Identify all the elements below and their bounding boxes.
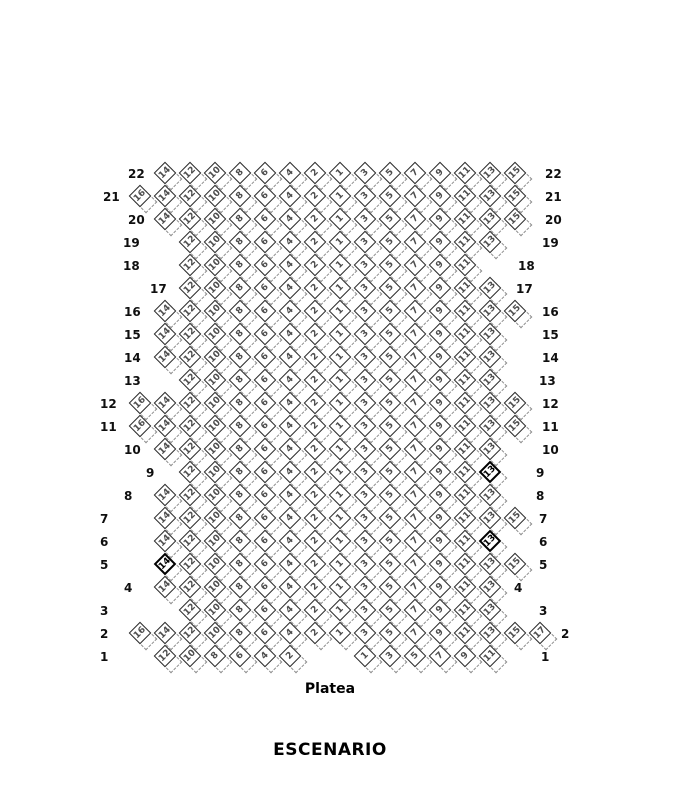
- row-label-right-10: 10: [542, 442, 559, 458]
- row-label-left-18: 18: [123, 258, 140, 274]
- row-label-left-14: 14: [124, 350, 141, 366]
- row-label-left-19: 19: [123, 235, 140, 251]
- row-label-left-2: 2: [100, 626, 108, 642]
- seating-map: Platea ESCENARIO 22221412108642135791113…: [0, 0, 700, 800]
- row-label-left-20: 20: [128, 212, 145, 228]
- row-label-left-22: 22: [128, 166, 145, 182]
- row-label-right-12: 12: [542, 396, 559, 412]
- row-label-left-11: 11: [100, 419, 117, 435]
- row-label-right-14: 14: [542, 350, 559, 366]
- row-label-left-6: 6: [100, 534, 108, 550]
- section-title-platea: Platea: [0, 681, 660, 697]
- row-label-right-18: 18: [518, 258, 535, 274]
- row-label-right-3: 3: [539, 603, 547, 619]
- row-label-right-22: 22: [545, 166, 562, 182]
- row-label-left-4: 4: [124, 580, 132, 596]
- row-label-left-8: 8: [124, 488, 132, 504]
- row-label-right-19: 19: [542, 235, 559, 251]
- row-label-right-11: 11: [542, 419, 559, 435]
- row-label-right-17: 17: [516, 281, 533, 297]
- row-label-left-21: 21: [103, 189, 120, 205]
- row-label-left-9: 9: [146, 465, 154, 481]
- row-label-right-20: 20: [545, 212, 562, 228]
- row-label-right-4: 4: [514, 580, 522, 596]
- row-label-right-6: 6: [539, 534, 547, 550]
- row-label-right-21: 21: [545, 189, 562, 205]
- row-label-right-16: 16: [542, 304, 559, 320]
- row-label-left-16: 16: [124, 304, 141, 320]
- row-label-left-12: 12: [100, 396, 117, 412]
- stage-title-escenario: ESCENARIO: [0, 740, 660, 760]
- row-label-left-13: 13: [124, 373, 141, 389]
- row-label-right-9: 9: [536, 465, 544, 481]
- row-label-left-15: 15: [124, 327, 141, 343]
- row-label-right-7: 7: [539, 511, 547, 527]
- row-label-left-10: 10: [124, 442, 141, 458]
- row-label-left-3: 3: [100, 603, 108, 619]
- row-label-left-1: 1: [100, 649, 108, 665]
- row-label-left-5: 5: [100, 557, 108, 573]
- row-label-right-13: 13: [539, 373, 556, 389]
- row-label-right-5: 5: [539, 557, 547, 573]
- row-label-left-7: 7: [100, 511, 108, 527]
- row-label-right-2: 2: [561, 626, 569, 642]
- row-label-right-8: 8: [536, 488, 544, 504]
- row-label-right-1: 1: [541, 649, 549, 665]
- row-label-left-17: 17: [150, 281, 167, 297]
- row-label-right-15: 15: [542, 327, 559, 343]
